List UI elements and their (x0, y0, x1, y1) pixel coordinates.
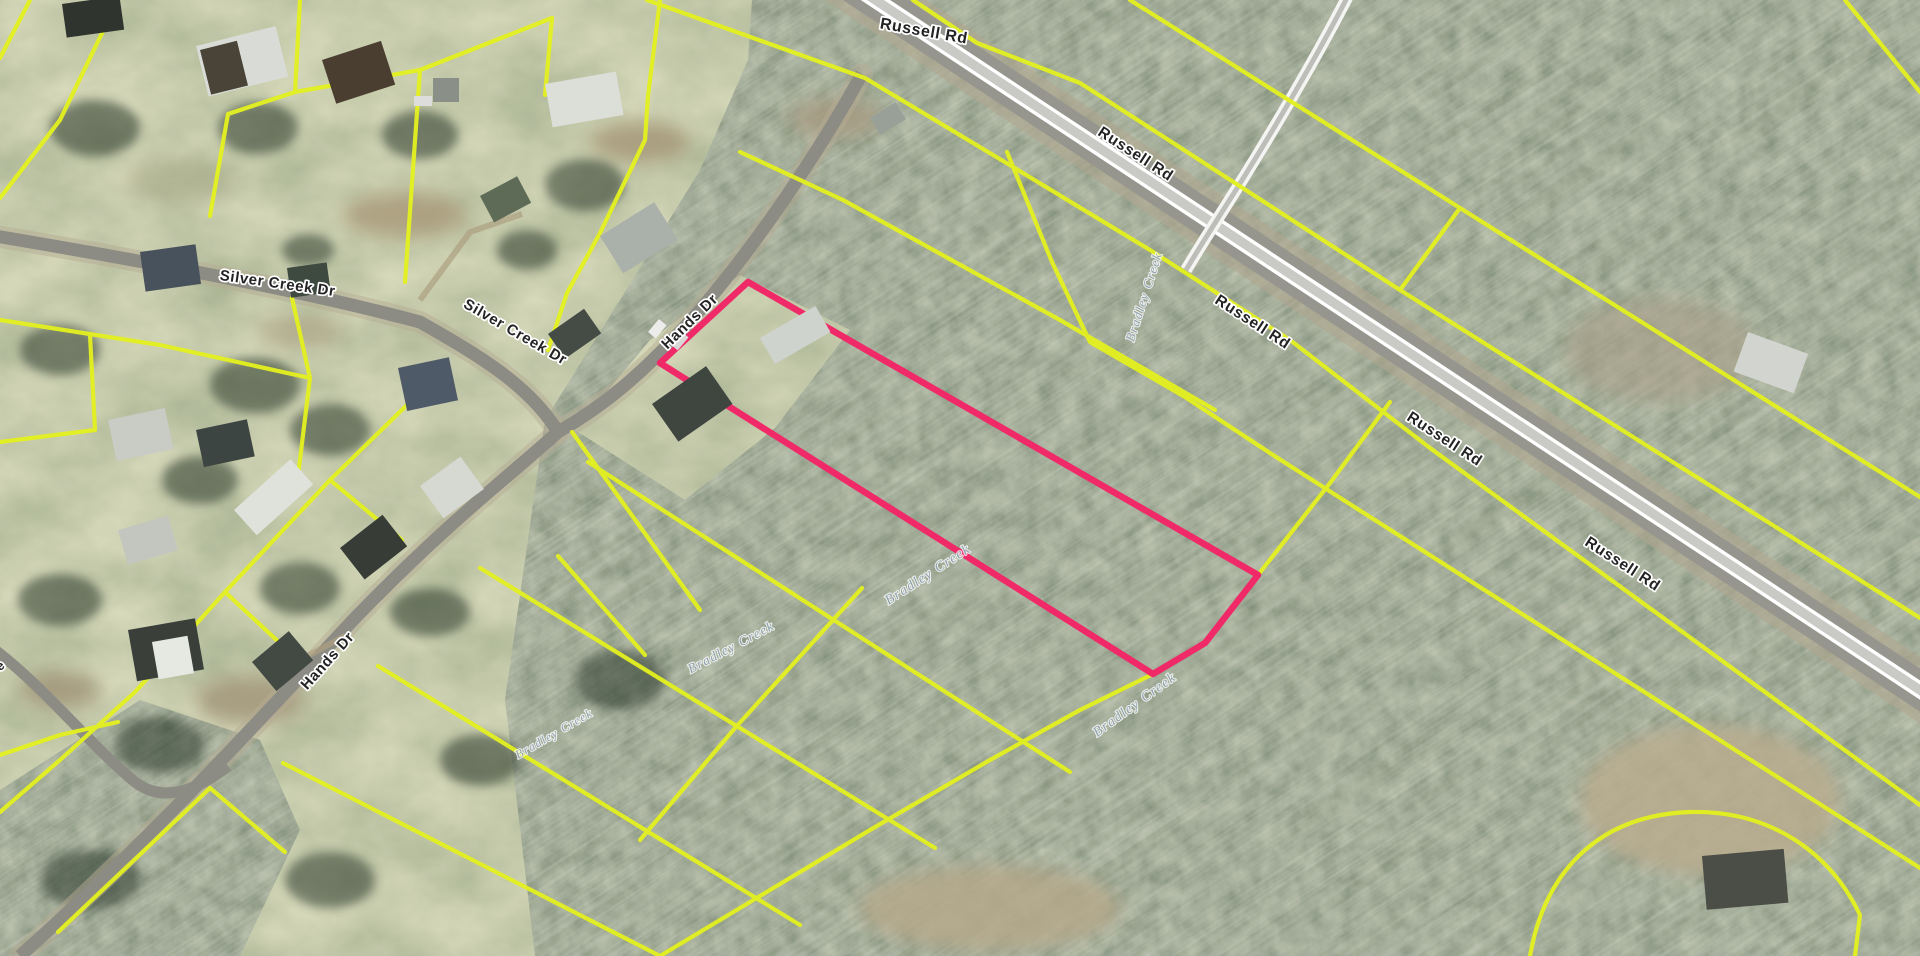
map-canvas[interactable]: Russell RdRussell RdRussell RdRussell Rd… (0, 0, 1920, 956)
car (414, 96, 432, 106)
map-viewport[interactable]: Russell RdRussell RdRussell RdRussell Rd… (0, 0, 1920, 956)
